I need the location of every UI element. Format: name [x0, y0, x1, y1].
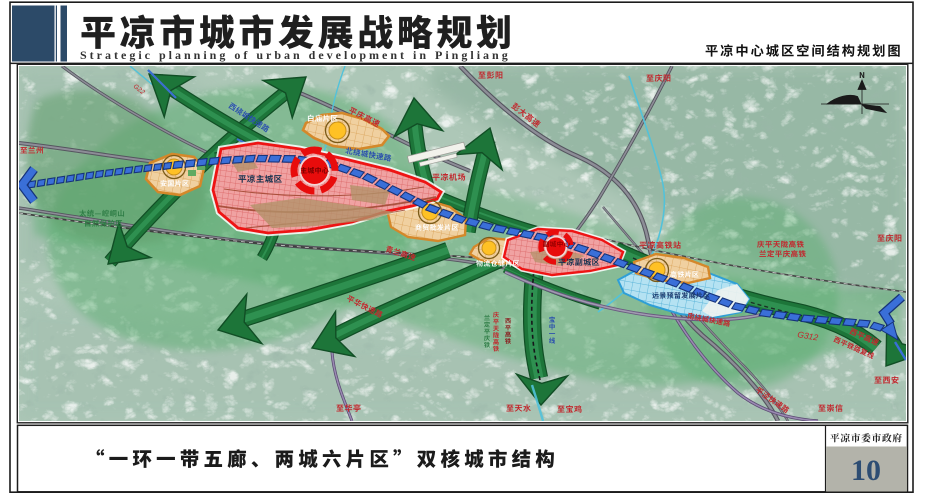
svg-text:Strategic planning of urban de: Strategic planning of urban development …: [80, 48, 511, 62]
svg-text:10: 10: [851, 454, 881, 487]
